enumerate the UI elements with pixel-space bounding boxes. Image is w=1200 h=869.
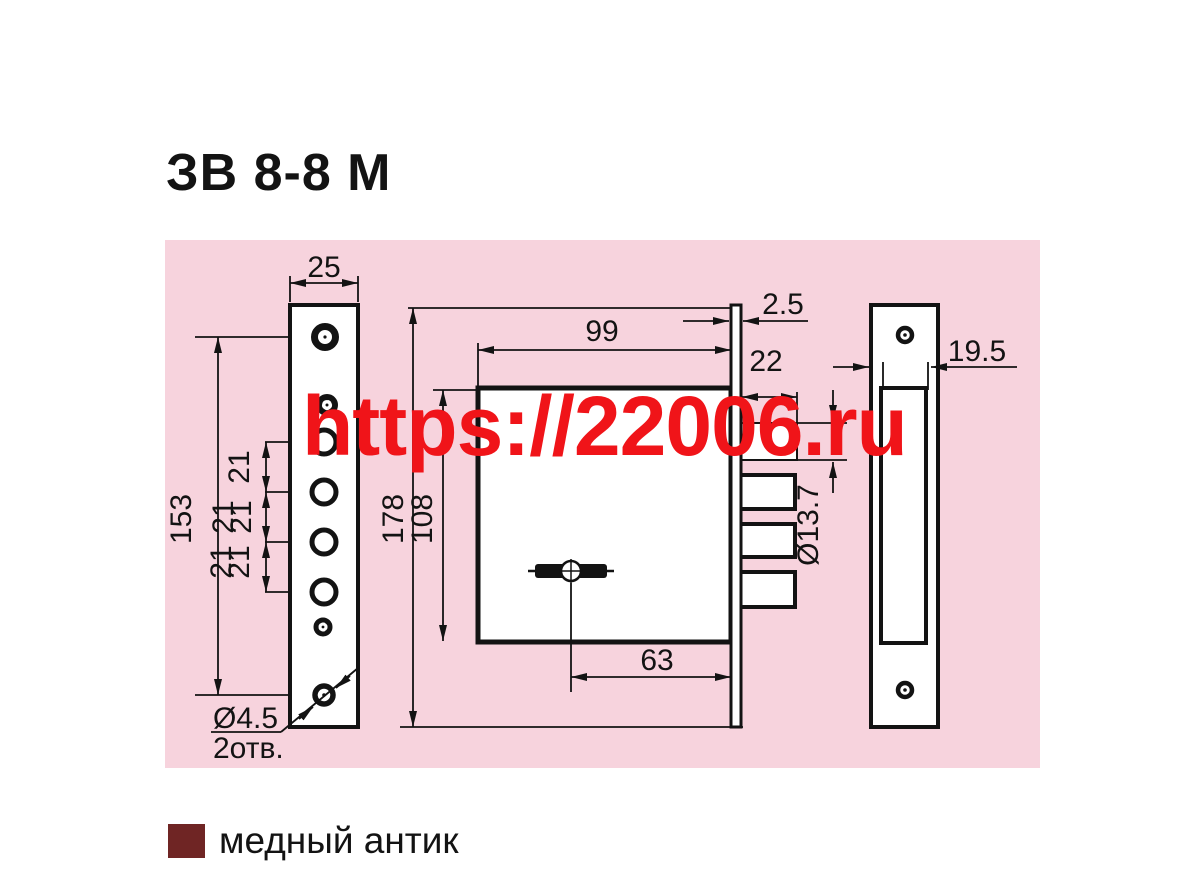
dim-label-bolt-throw: 22 <box>749 345 782 378</box>
keyway-hole-4 <box>312 580 336 604</box>
deadbolt-2 <box>739 475 795 509</box>
legend-label: медный антик <box>219 820 459 862</box>
color-swatch-copper-antique <box>168 824 205 858</box>
hole-center-dot <box>903 688 907 692</box>
color-legend: медный антик <box>168 820 459 862</box>
dim-label-screw-dia: Ø4.5 <box>213 702 278 735</box>
dim-label-screw-count: 2отв. <box>213 732 284 765</box>
dim-label-strike-width: 19.5 <box>948 335 1006 368</box>
page-title: ЗВ 8-8 М <box>166 143 392 203</box>
watermark-text: https://22006.ru <box>302 384 907 468</box>
faceplate-outline <box>290 305 358 727</box>
keyway-hole-3 <box>312 530 336 554</box>
dim-label-pitch: 21 <box>223 545 256 578</box>
dim-label-body-height: 108 <box>406 494 439 544</box>
keyway-hole-2 <box>312 480 336 504</box>
hole-center-dot <box>903 333 907 337</box>
dim-label-backset: 63 <box>640 644 673 677</box>
dim-label-pitch: 21 <box>223 450 256 483</box>
lock-face-strip <box>731 305 741 727</box>
deadbolt-4 <box>739 572 795 607</box>
lock-technical-drawing: 25 153 21 21 21 21 21 Ø4.5 2отв. 99 2.5 … <box>165 240 1040 768</box>
dim-label-plate-span: 153 <box>165 494 198 544</box>
hole-center-dot <box>322 626 325 629</box>
drawing-panel: 25 153 21 21 21 21 21 Ø4.5 2отв. 99 2.5 … <box>165 240 1040 768</box>
dim-label-bolt-dia: Ø13.7 <box>792 484 825 566</box>
dim-label-plate-width: 25 <box>307 251 340 284</box>
hole-center-dot <box>323 335 326 338</box>
dim-label-face-thickness: 2.5 <box>762 288 804 321</box>
dim-label-body-width: 99 <box>585 315 618 348</box>
deadbolt-3 <box>739 524 795 557</box>
dim-label-pitch: 21 <box>225 500 258 533</box>
strike-plate-view <box>833 305 1017 727</box>
